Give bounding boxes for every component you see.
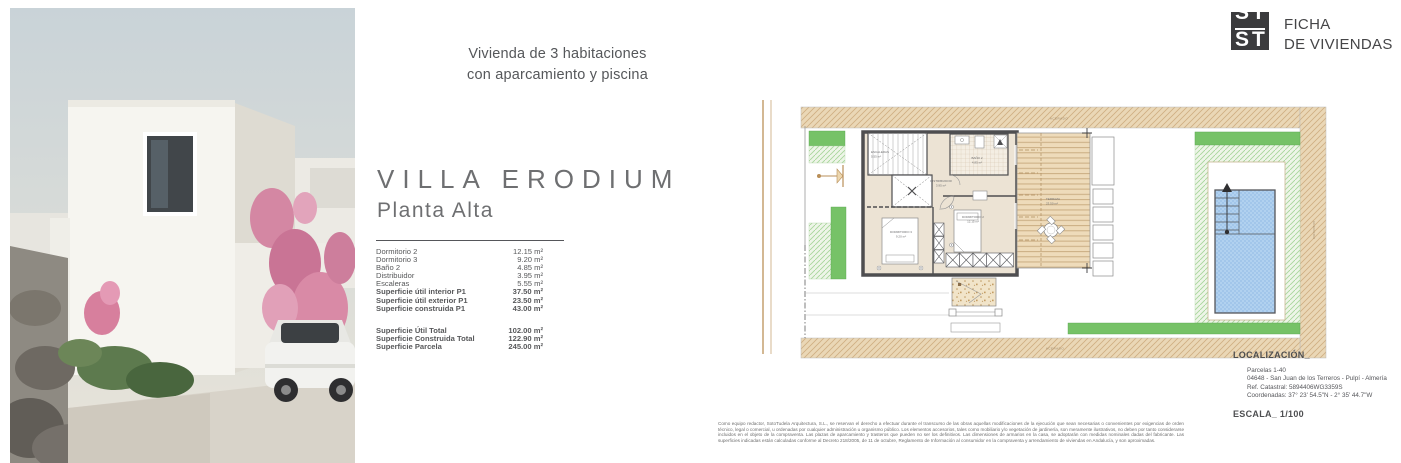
room-area: 3.95 m²: [936, 184, 946, 188]
terraza: TERRAZA 23.50 m²: [1017, 128, 1092, 273]
ficha-page: Vivienda de 3 habitaciones con aparcamie…: [0, 0, 1401, 463]
room-escaleras: ESCALERAS 5.55 m²: [868, 133, 927, 175]
toilet: [975, 136, 984, 148]
room-label: BAÑO 2: [971, 155, 982, 160]
location-line-parcels: Parcelas 1-40: [1247, 367, 1387, 375]
room-label: DORMITORIO 2: [962, 215, 984, 219]
street-label-top: ACERADO: [1050, 117, 1069, 121]
room-area: 5.55 m²: [871, 155, 881, 159]
street-label-bottom: ACERADO: [1046, 347, 1065, 351]
brand-title: FICHA DE VIVIENDAS: [1269, 12, 1393, 54]
legal-disclaimer: Como equipo redactor, SotoTudela Arquite…: [718, 421, 1184, 444]
gate-leaf: [837, 169, 843, 183]
villa-name: VILLA ERODIUM: [377, 164, 680, 195]
void-double-height: [892, 175, 932, 207]
entry-garden: [809, 131, 846, 279]
scale-label: ESCALA_ 1/100: [1233, 409, 1387, 419]
street-label-right: ACERADO: [1312, 221, 1316, 240]
room-label: ESCALERAS: [871, 150, 889, 154]
logo-letters-bottom: ST: [1235, 29, 1268, 50]
pool: [1215, 183, 1275, 313]
area-value: 43.00 m²: [513, 305, 543, 313]
room-label: TERRAZA: [1046, 197, 1060, 201]
logo-letters-top: ST: [1235, 12, 1268, 23]
areas-table: Dormitorio 2 12.15 m² Dormitorio 3 9.20 …: [376, 240, 564, 351]
location-line-cadastral: Ref. Catastral: 5894406WG3359S: [1247, 384, 1387, 392]
brand-title-line-2: DE VIVIENDAS: [1284, 35, 1393, 55]
area-label: Superficie construida P1: [376, 305, 465, 313]
building: ESCALERAS 5.55 m²: [863, 132, 1020, 275]
area-row: Superficie construida P1 43.00 m²: [376, 305, 564, 313]
location-heading: LOCALIZACIÓN_: [1233, 350, 1387, 360]
room-label: DORMITORIO 3: [890, 230, 912, 234]
villa-photo: [10, 8, 355, 463]
room-area: 23.50 m²: [1046, 202, 1058, 206]
intro-line-2: con aparcamiento y piscina: [440, 65, 675, 86]
dresser: [973, 191, 987, 200]
brand: ST ST FICHA DE VIVIENDAS: [1231, 12, 1393, 54]
room-area: 12.15 m²: [967, 220, 979, 224]
intro-text: Vivienda de 3 habitaciones con aparcamie…: [440, 44, 675, 86]
villa-floor: Planta Alta: [377, 199, 494, 223]
villa-photo-art: [10, 8, 355, 463]
site-plan: ACERADO ACERADO ACERADO: [755, 95, 1330, 360]
location-lines: Parcelas 1-40 04648 - San Juan de los Te…: [1247, 367, 1387, 400]
gate-hinge: [817, 174, 821, 178]
room-area: 9.20 m²: [896, 235, 906, 239]
brand-title-line-1: FICHA: [1284, 15, 1393, 35]
pillow: [886, 255, 914, 262]
porch: [949, 278, 1002, 332]
sink: [955, 136, 969, 144]
room-bano2: BAÑO 2 4.85 m²: [950, 134, 1008, 175]
location-line-address: 04648 - San Juan de los Terreros - Pulpí…: [1247, 375, 1387, 383]
room-area: 4.85 m²: [972, 161, 982, 165]
location-line-coordinates: Coordenadas: 37° 23' 54.5"N - 2° 35' 44.…: [1247, 392, 1387, 400]
total-value: 245.00 m²: [508, 343, 543, 351]
total-row: Superficie Parcela 245.00 m²: [376, 343, 564, 351]
site-plan-drawing: ACERADO ACERADO ACERADO: [755, 95, 1330, 360]
stst-logo: ST ST: [1231, 12, 1269, 50]
total-label: Superficie Parcela: [376, 343, 442, 351]
pergola-louvers: [1092, 137, 1114, 276]
intro-line-1: Vivienda de 3 habitaciones: [440, 44, 675, 65]
areas-totals: Superficie Útil Total 102.00 m² Superfic…: [376, 327, 564, 351]
room-label: DISTRIBUIDOR: [930, 179, 952, 183]
location-block: LOCALIZACIÓN_ Parcelas 1-40 04648 - San …: [1233, 350, 1387, 419]
